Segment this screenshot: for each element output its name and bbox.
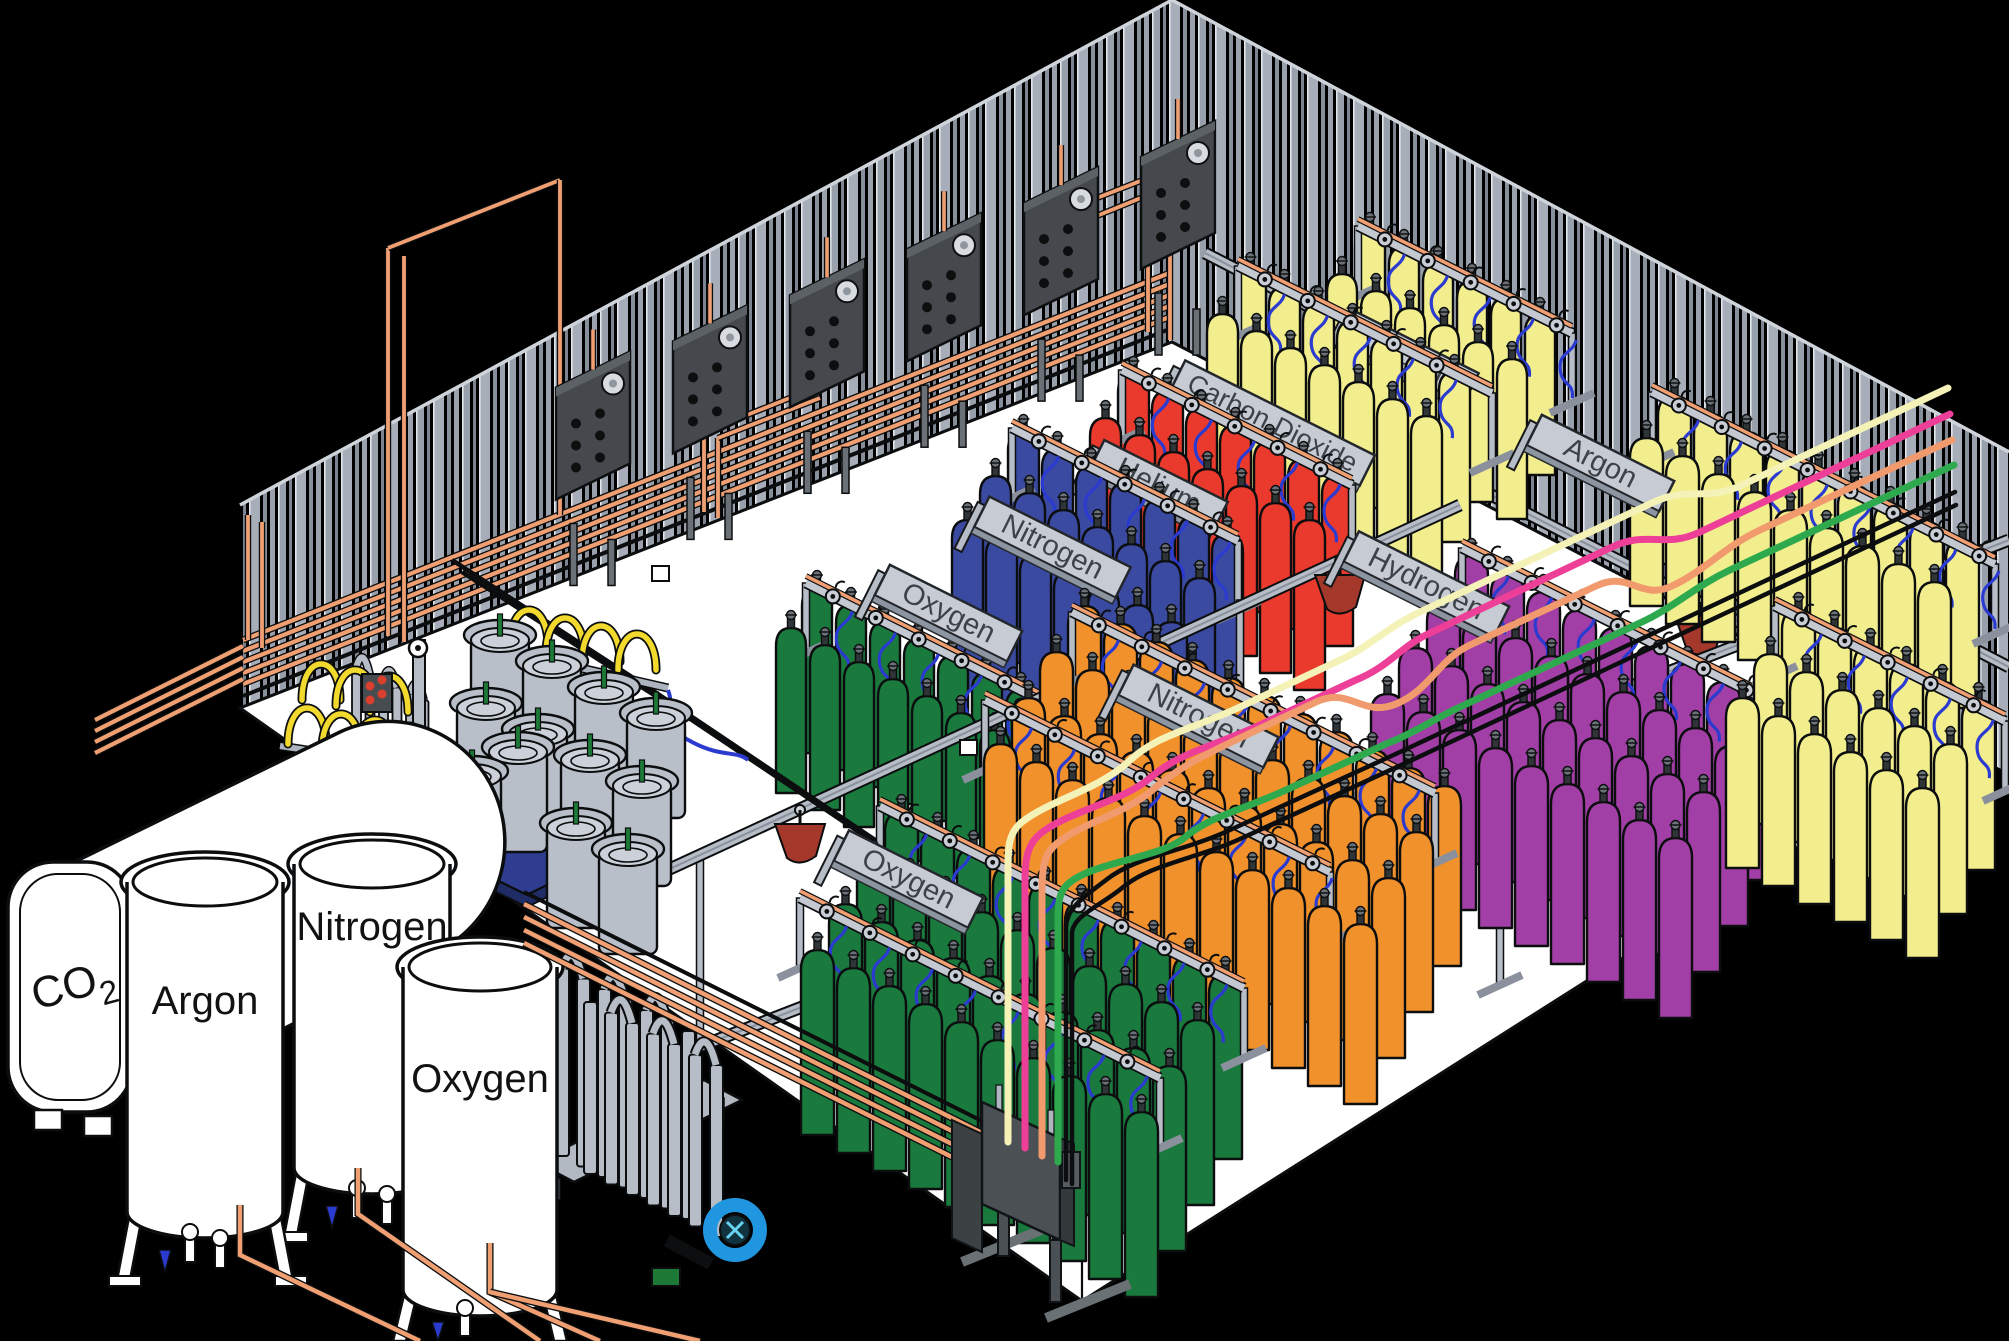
gas-cylinder xyxy=(1726,698,1759,868)
nitrogen-tank-label: Nitrogen xyxy=(296,905,447,949)
gas-cylinder xyxy=(1906,788,1939,958)
panel-leg xyxy=(1050,1240,1061,1302)
tank-top xyxy=(409,943,551,991)
co2-tank-foot xyxy=(34,1110,62,1130)
oxygen-tank-label: Oxygen xyxy=(411,1057,549,1101)
tank-body xyxy=(127,882,283,1238)
gas-cylinder xyxy=(1659,838,1692,1018)
valve-box xyxy=(362,674,392,712)
gas-plant-illustration: Argon Carbon Dioxide Helium Nitrogen Oxy… xyxy=(0,0,2009,1341)
gas-cylinder xyxy=(1272,888,1305,1068)
gas-cylinder xyxy=(1738,492,1771,660)
gas-cylinder xyxy=(776,628,806,793)
scene-svg: Argon Carbon Dioxide Helium Nitrogen Oxy… xyxy=(0,0,2009,1341)
argon-tank-label: Argon xyxy=(152,979,259,1023)
oxygen-tank: Oxygen xyxy=(393,937,567,1341)
gas-cylinder xyxy=(1623,820,1656,1000)
gas-cylinder xyxy=(1344,924,1377,1104)
cryogenic-dewar xyxy=(592,828,664,954)
gas-cylinder xyxy=(810,645,840,810)
gas-cylinder xyxy=(1125,1112,1158,1297)
gas-cylinder xyxy=(1515,766,1548,946)
gas-cylinder xyxy=(1870,770,1903,940)
co2-tank-foot xyxy=(84,1116,112,1136)
tank-fitting-cap xyxy=(457,1300,473,1316)
tank-fitting-cap xyxy=(212,1230,228,1246)
panel-side xyxy=(952,1120,982,1252)
gas-cylinder xyxy=(1798,734,1831,904)
gas-cylinder xyxy=(1308,906,1341,1086)
gas-cylinder xyxy=(1551,784,1584,964)
gas-cylinder xyxy=(844,662,874,827)
gas-cylinder xyxy=(1479,748,1512,928)
tank-fitting-cap xyxy=(182,1224,198,1240)
tank-top xyxy=(300,840,444,888)
gas-cylinder xyxy=(1089,1094,1122,1279)
turbine-base xyxy=(652,1268,680,1286)
gas-cylinder xyxy=(1587,802,1620,982)
tank-foot xyxy=(109,1276,141,1286)
gas-cylinder xyxy=(1294,520,1325,690)
gas-cylinder xyxy=(1834,752,1867,922)
gas-cylinder xyxy=(1762,716,1795,886)
argon-tank: Argon xyxy=(109,852,307,1286)
tank-fitting-cap xyxy=(379,1186,395,1202)
tank-top xyxy=(133,858,277,906)
